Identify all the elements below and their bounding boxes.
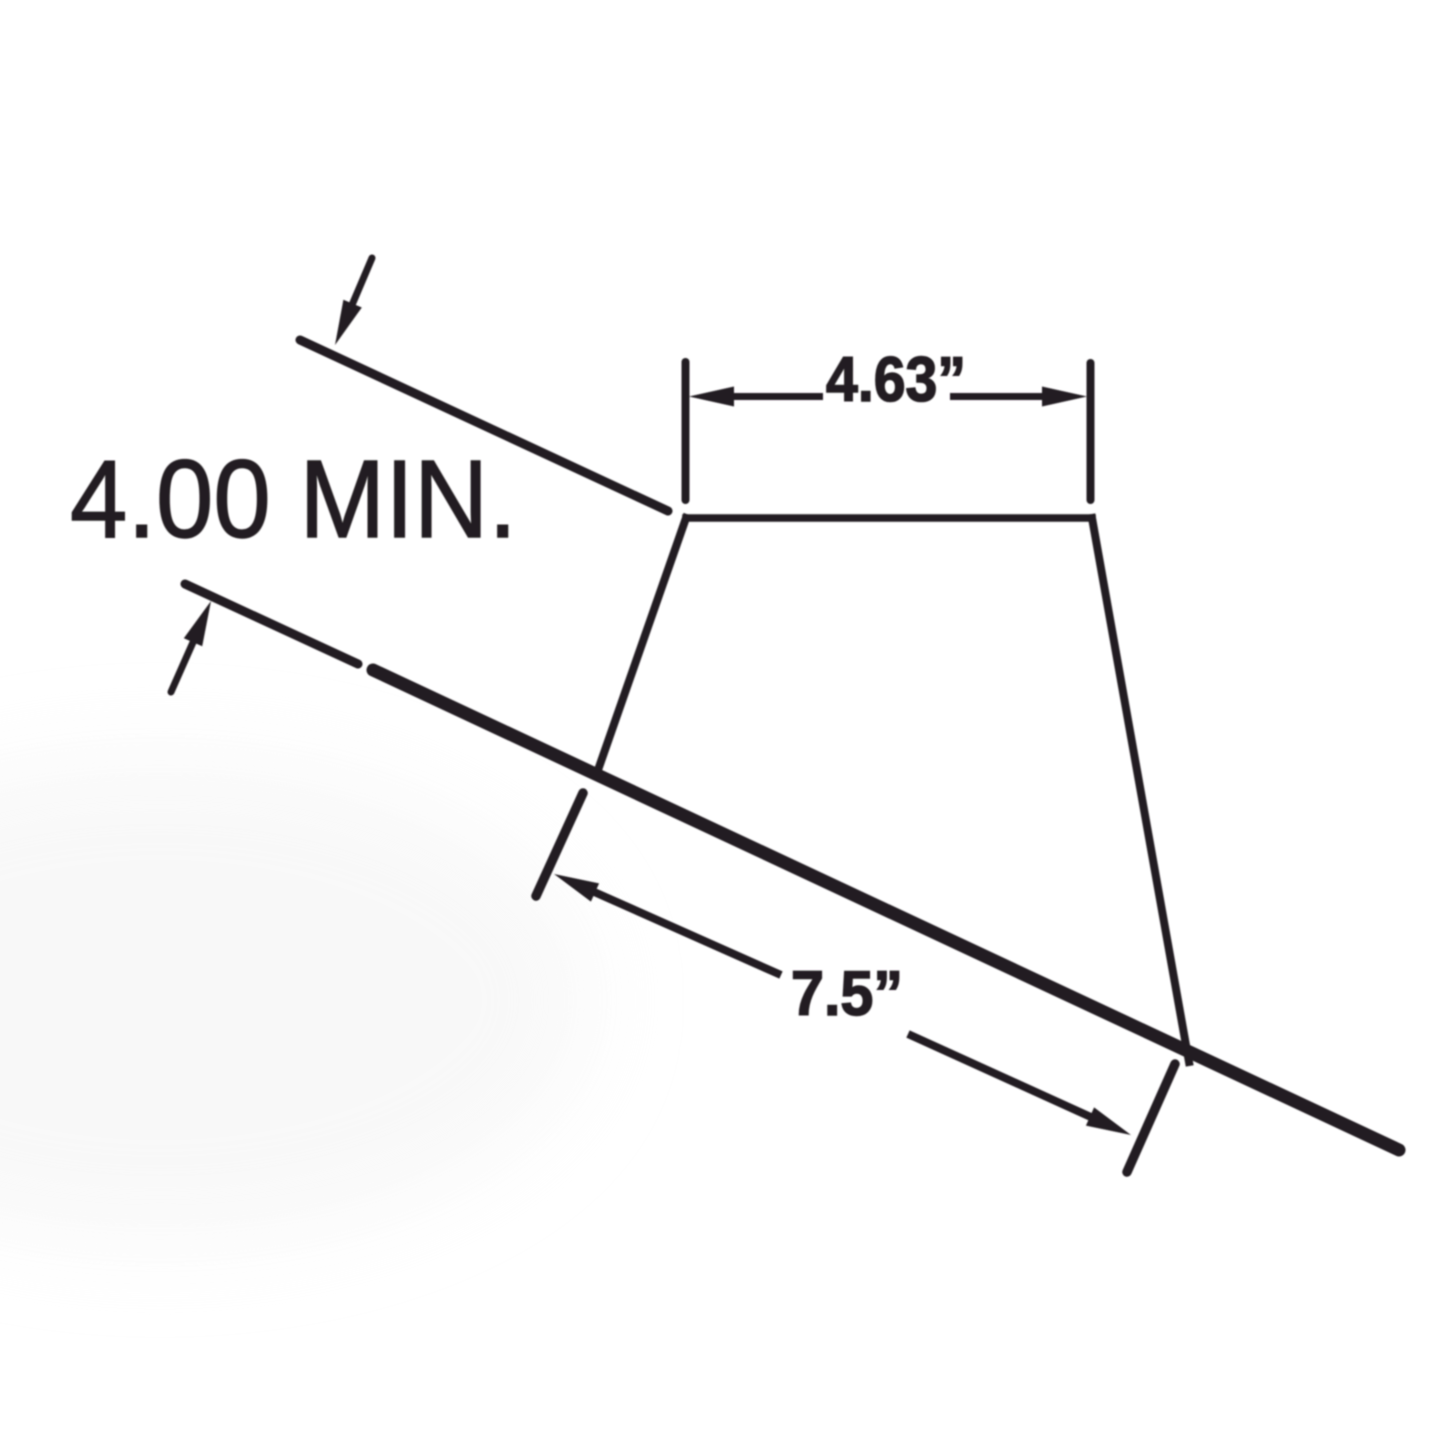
svg-text:4.63”: 4.63” — [826, 345, 966, 415]
svg-text:7.5”: 7.5” — [791, 959, 903, 1029]
svg-text:4.00 MIN.: 4.00 MIN. — [70, 438, 517, 561]
